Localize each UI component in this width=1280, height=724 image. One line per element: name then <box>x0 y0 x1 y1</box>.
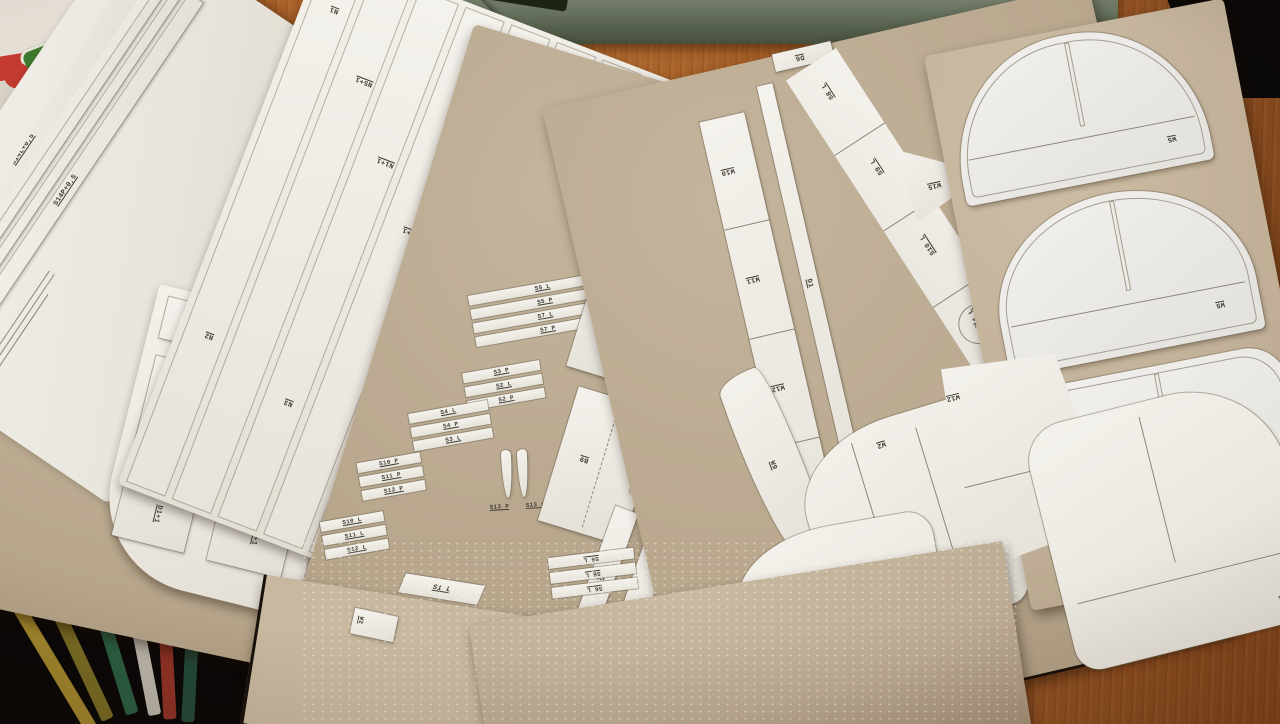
s6-strips: S6 L S6 L S6 L <box>548 548 639 603</box>
s-strip-group3: S4 L S4 P S3 L <box>408 400 494 455</box>
part-label: S4 P <box>443 421 459 430</box>
part-label: W2 <box>357 616 364 625</box>
part-label: S7 L <box>537 311 553 320</box>
photo-desk-scene: S14L+0,5 S14P+0,5 D5 D5+1 D3 D2 D1+1 D2+… <box>0 0 1280 724</box>
part-label: B9 <box>579 454 590 463</box>
part-label: S10 L <box>342 517 362 526</box>
part-label: S10 L <box>919 233 937 256</box>
part-label: S13 P <box>490 504 510 511</box>
part-label: W9 <box>768 460 778 471</box>
part-label: W12 <box>945 392 960 402</box>
s-strip-group5: S10 L S11 L S12 L <box>320 511 390 563</box>
part-label: D6 <box>794 52 804 61</box>
part-label: S2 L <box>496 381 512 390</box>
part-label: S3 L <box>445 435 461 444</box>
part-label: W5 <box>1166 134 1176 143</box>
part-label: N1+1 <box>376 155 395 168</box>
part-label: S2 P <box>498 395 514 404</box>
part-label: N3 <box>283 397 294 407</box>
part-label: S3 P <box>493 367 509 376</box>
part-label: S6 L <box>583 554 599 562</box>
part-label: S5 L <box>534 284 550 293</box>
part-label: S9 L <box>870 157 886 176</box>
part-label: S1 L <box>431 584 452 593</box>
part-label: S11 L <box>344 531 364 540</box>
part-label: S6 L <box>585 569 601 577</box>
part-label: S12 L <box>347 545 367 554</box>
part-label: S8 L <box>821 82 837 101</box>
s-strip-group4: S10 P S11 P S12 P <box>356 452 426 504</box>
part-label: W10 <box>720 166 735 176</box>
part-label: N5+1 <box>355 75 374 88</box>
part-label: W2 <box>876 439 887 448</box>
part-label: S14L+0,5 <box>11 133 37 167</box>
part-label: N1 <box>329 5 340 15</box>
part-label: N2 <box>204 330 215 340</box>
part-label: D1+1 <box>152 504 163 523</box>
part-label: S10 P <box>379 458 399 467</box>
part-label: S6 L <box>587 584 603 592</box>
part-label: W11 <box>745 274 760 284</box>
part-label: S4 L <box>440 408 456 417</box>
part-label: S11 P <box>381 472 401 481</box>
part-label: S12 P <box>384 486 404 495</box>
part-label: S5 P <box>537 297 553 306</box>
part-label: W12 <box>770 383 785 393</box>
part-label: S7 P <box>540 325 556 334</box>
part-label: D1 <box>804 278 813 288</box>
part-label: W15 <box>927 180 942 190</box>
